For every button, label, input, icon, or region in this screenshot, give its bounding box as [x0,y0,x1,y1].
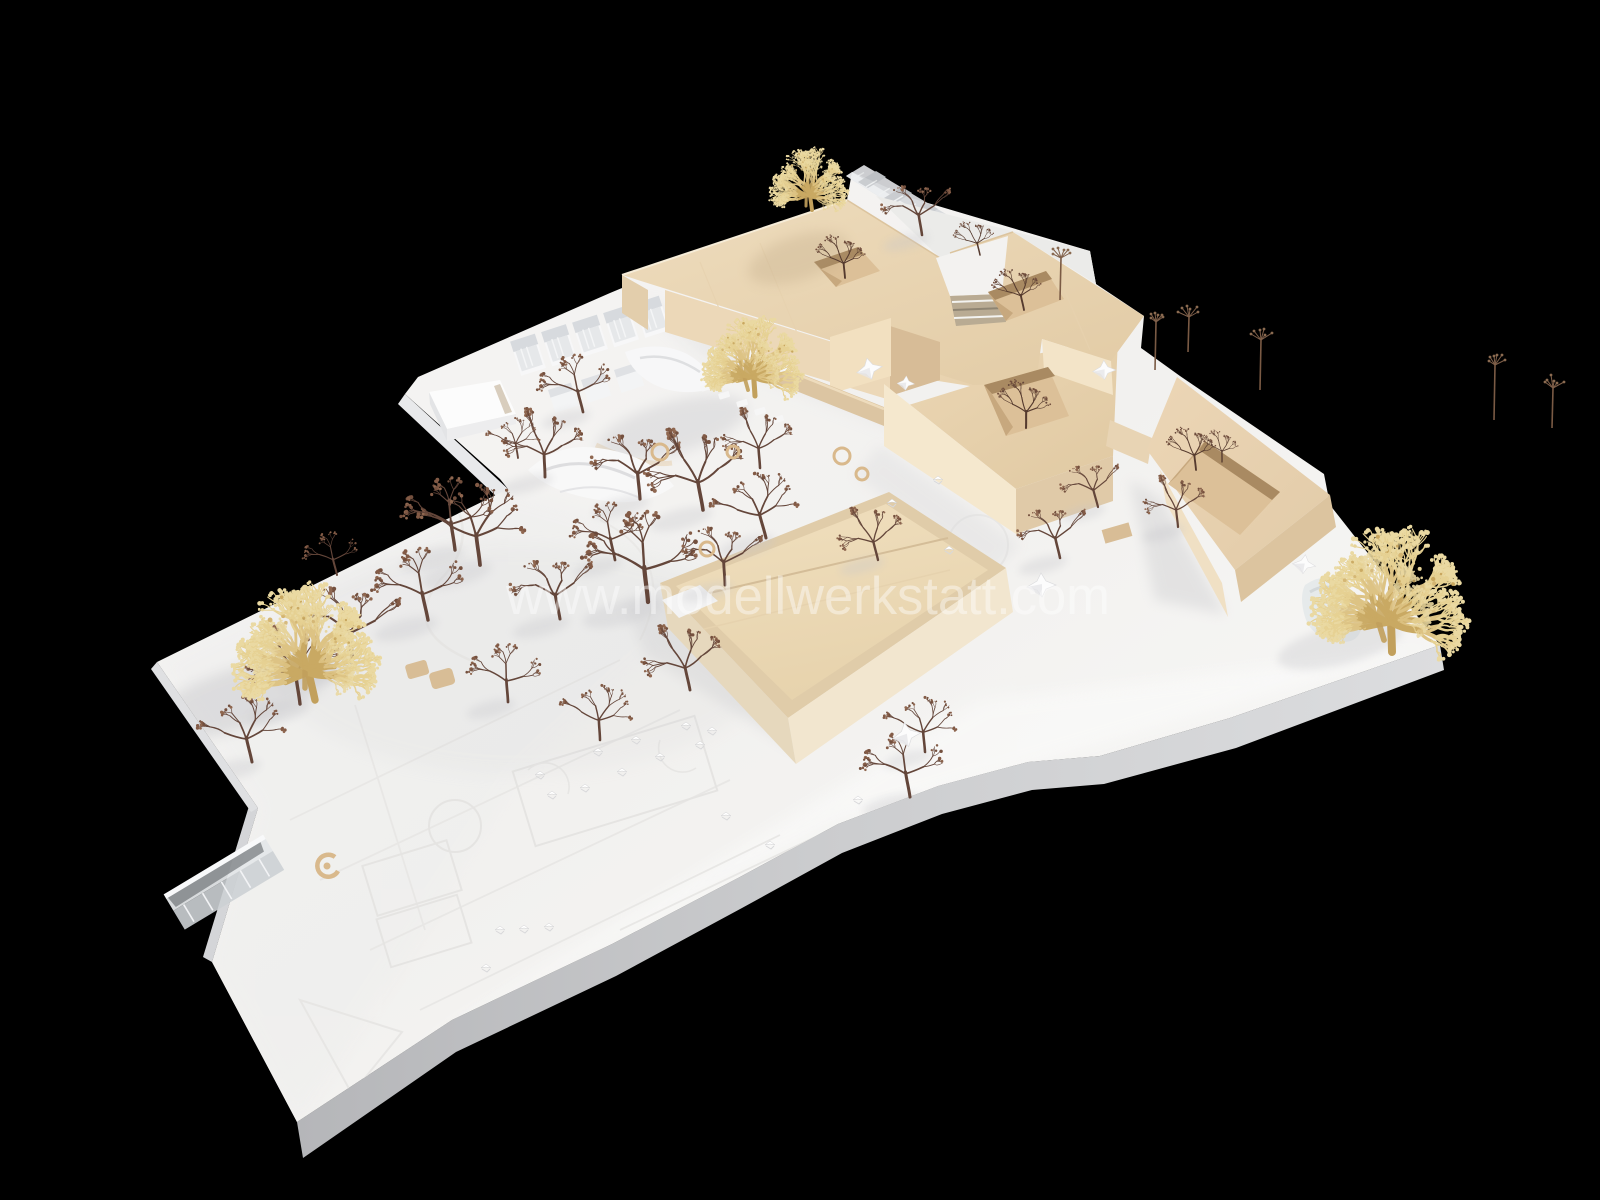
svg-text:www.modellwerkstatt.com: www.modellwerkstatt.com [505,567,1110,626]
